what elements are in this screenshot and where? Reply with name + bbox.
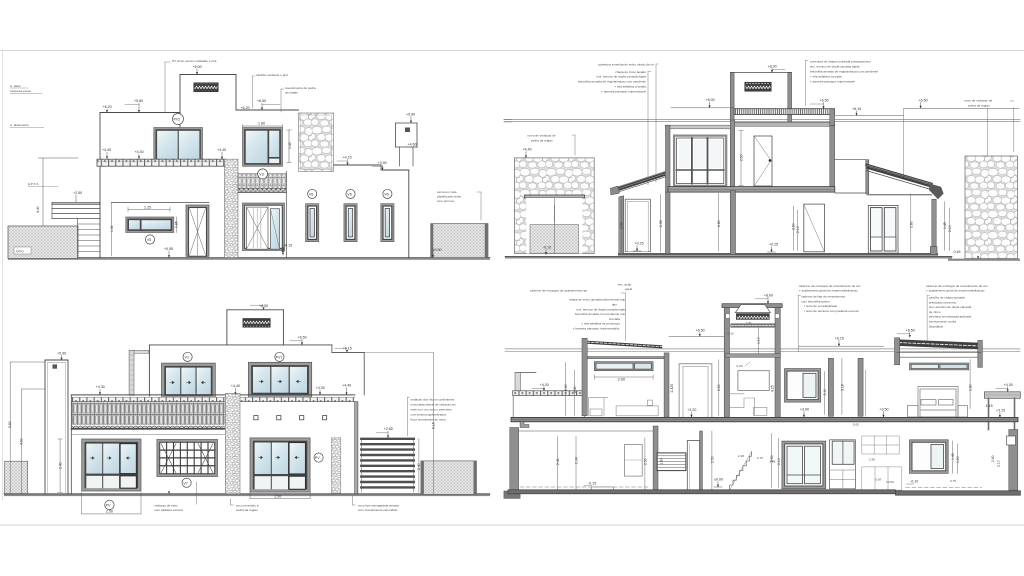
svg-text:2.04: 2.04 <box>574 457 578 464</box>
svg-text:0.20: 0.20 <box>737 364 743 368</box>
svg-text:2.50: 2.50 <box>710 456 714 463</box>
svg-text:0.45: 0.45 <box>954 250 961 254</box>
svg-text:interiormente oculta: interiormente oculta <box>929 320 956 324</box>
svg-text:2.50: 2.50 <box>869 458 875 462</box>
svg-text:+0.15: +0.15 <box>283 244 292 248</box>
svg-text:0.10: 0.10 <box>728 332 734 336</box>
svg-text:+4.30: +4.30 <box>540 383 549 387</box>
svg-text:+6.15: +6.15 <box>852 107 861 111</box>
svg-text:2.50: 2.50 <box>643 458 647 465</box>
svg-text:caderno de encargos de acabame: caderno de encargos de acabamentos ge <box>530 289 587 293</box>
svg-text:cobertura de chapa ondulada pr: cobertura de chapa ondulada prelacada ti… <box>810 60 871 64</box>
svg-text:betonilha armada de regulariza: betonilha armada de regularizacao com pe… <box>810 70 878 74</box>
svg-text:betonilha armada de regulariza: betonilha armada de regularizacao com pe… <box>578 80 646 84</box>
svg-text:muro de vedacao de: muro de vedacao de <box>528 134 556 138</box>
svg-text:2.80: 2.80 <box>991 455 995 462</box>
svg-text:rede met. em todo o perimetro: rede met. em todo o perimetro <box>411 408 453 412</box>
svg-text:caixilho oscilante e pint.: caixilho oscilante e pint. <box>256 73 289 77</box>
svg-text:enc. acab.: enc. acab. <box>618 283 632 287</box>
svg-text:vedacao de vidro: vedacao de vidro <box>154 503 178 507</box>
svg-text:±0.00: ±0.00 <box>433 248 442 252</box>
svg-text:cruzada: cruzada <box>609 317 620 321</box>
svg-text:2.425: 2.425 <box>670 384 674 393</box>
svg-text:-0.10: -0.10 <box>543 246 551 250</box>
svg-text:com revestimento escondido: com revestimento escondido <box>358 508 398 512</box>
svg-text:da regiao: da regiao <box>285 91 298 95</box>
svg-text:±0.00: ±0.00 <box>714 478 723 482</box>
svg-text:soco revestido a: soco revestido a <box>236 503 259 507</box>
svg-text:de zinco: de zinco <box>929 310 941 314</box>
svg-text:2.80: 2.80 <box>717 220 721 227</box>
svg-text:+4.30: +4.30 <box>1004 383 1013 387</box>
svg-text:4.25: 4.25 <box>771 385 775 392</box>
svg-text:2.40: 2.40 <box>556 458 560 465</box>
svg-text:+ tela asfaltica de proteccao: + tela asfaltica de proteccao <box>581 322 620 326</box>
svg-text:+8.00: +8.00 <box>768 64 777 68</box>
svg-text:2.40: 2.40 <box>58 462 62 469</box>
svg-text:PV2: PV2 <box>174 118 181 122</box>
svg-text:(standard): (standard) <box>929 324 943 328</box>
svg-text:2.48: 2.48 <box>738 454 744 458</box>
svg-text:caderno de laje de revestiment: caderno de laje de revestimento <box>801 295 845 299</box>
svg-text:6.15: 6.15 <box>432 422 436 429</box>
svg-text:A. dado: A. dado <box>10 84 21 88</box>
svg-text:1.60: 1.60 <box>660 458 664 465</box>
svg-text:2.56: 2.56 <box>659 220 663 227</box>
svg-text:cobertura invertida de seixo r: cobertura invertida de seixo rolado de r… <box>598 63 654 67</box>
svg-text:+6.15: +6.15 <box>835 337 844 341</box>
svg-text:+6.50: +6.50 <box>298 335 307 339</box>
svg-text:1.45: 1.45 <box>288 142 292 149</box>
svg-text:V6: V6 <box>309 193 313 197</box>
svg-text:cerca em rede: cerca em rede <box>437 190 457 194</box>
svg-text:4.50: 4.50 <box>19 438 23 445</box>
svg-text:com padieira escond.: com padieira escond. <box>154 508 184 512</box>
svg-text:+ barreira parvapor impermeave: + barreira parvapor impermeavel <box>810 80 855 84</box>
svg-text:+ tela asfaltica cruzada: + tela asfaltica cruzada <box>810 75 842 79</box>
svg-text:+4.30: +4.30 <box>96 385 105 389</box>
svg-text:² tecto de contraplacado: ² tecto de contraplacado <box>804 304 837 308</box>
svg-text:+2.50: +2.50 <box>73 191 82 195</box>
svg-text:2.80: 2.80 <box>909 221 913 228</box>
svg-text:+4.10: +4.10 <box>343 156 352 160</box>
svg-text:+3.15: +3.15 <box>996 408 1005 412</box>
svg-text:+5.90: +5.90 <box>57 352 66 356</box>
svg-text:V1: V1 <box>185 356 189 360</box>
svg-text:2.80: 2.80 <box>969 384 973 391</box>
svg-text:+6.50: +6.50 <box>257 99 266 103</box>
svg-text:+6.00: +6.00 <box>706 98 715 102</box>
svg-text:turquesa escec.: turquesa escec. <box>10 89 32 93</box>
svg-text:betonilha armada com pendente: betonilha armada com pendente min. <box>575 312 626 316</box>
svg-text:com prumos galvanizados: com prumos galvanizados <box>411 413 447 417</box>
svg-text:+6.00: +6.00 <box>193 65 202 69</box>
svg-text:+0.25: +0.25 <box>769 243 778 247</box>
svg-text:+3.90: +3.90 <box>378 161 387 165</box>
svg-text:isol. acustico de dupla camada: isol. acustico de dupla camada <box>929 305 972 309</box>
svg-text:² tecto de terracos com padiei: ² tecto de terracos com padieira escond. <box>804 309 859 313</box>
svg-text:pedra da regiao: pedra da regiao <box>968 104 990 108</box>
svg-text:caixilho de chapa quinada: caixilho de chapa quinada <box>929 296 965 300</box>
svg-text:isol. termico de dupla camada: isol. termico de dupla camada rigida <box>596 75 646 79</box>
svg-text:revestimento de pedra: revestimento de pedra <box>285 86 316 90</box>
svg-text:2.10: 2.10 <box>796 226 800 233</box>
svg-text:+8.50: +8.50 <box>259 304 268 308</box>
svg-text:1.40: 1.40 <box>110 225 114 232</box>
svg-text:1.15: 1.15 <box>986 404 993 408</box>
svg-text:5.05: 5.05 <box>853 422 859 426</box>
svg-text:±0.00: ±0.00 <box>886 480 894 484</box>
svg-text:+0.25: +0.25 <box>635 242 644 246</box>
svg-text:2.60: 2.60 <box>618 378 625 382</box>
svg-text:2.10: 2.10 <box>823 389 827 396</box>
svg-text:PV: PV <box>106 504 111 508</box>
svg-text:2.30: 2.30 <box>620 222 624 229</box>
svg-text:2.60: 2.60 <box>564 384 568 391</box>
svg-text:2.10: 2.10 <box>948 225 952 232</box>
svg-text:soco tipo esmagadela pintado: soco tipo esmagadela pintado <box>358 503 399 507</box>
svg-text:com betonilha queim.: com betonilha queim. <box>801 299 831 303</box>
svg-text:+6.50: +6.50 <box>820 99 829 103</box>
svg-text:+ tela asfaltica cruzada: + tela asfaltica cruzada <box>614 85 646 89</box>
svg-text:+3.90: +3.90 <box>800 408 809 412</box>
svg-text:-0.15: -0.15 <box>588 482 596 486</box>
svg-text:V3: V3 <box>259 173 263 177</box>
svg-text:-0.10: -0.10 <box>910 480 918 484</box>
svg-text:+ acabamento geral de impermea: + acabamento geral de impermeabilizacao. <box>799 288 858 292</box>
svg-text:+6.50: +6.50 <box>696 329 705 333</box>
svg-text:1.45: 1.45 <box>943 222 947 229</box>
svg-text:0.87: 0.87 <box>876 478 882 482</box>
svg-text:vedacao dos muros confinantes: vedacao dos muros confinantes <box>411 398 455 402</box>
svg-text:+5.90: +5.90 <box>406 113 415 117</box>
svg-text:pedra da regiao: pedra da regiao <box>236 508 258 512</box>
svg-text:2.50: 2.50 <box>717 384 721 391</box>
svg-text:+2.80: +2.80 <box>384 427 393 431</box>
svg-text:2.50: 2.50 <box>106 510 113 514</box>
svg-text:2.40: 2.40 <box>573 386 577 393</box>
svg-text:5.80: 5.80 <box>8 421 12 428</box>
svg-text:plastificada verde: plastificada verde <box>437 195 461 199</box>
svg-text:PV: PV <box>315 456 320 460</box>
svg-text:+4.30: +4.30 <box>135 150 144 154</box>
svg-text:+8.00: +8.00 <box>764 293 773 297</box>
svg-text:A. alisamento: A. alisamento <box>10 123 29 127</box>
svg-text:4.40: 4.40 <box>36 206 40 213</box>
svg-text:+0.55: +0.55 <box>164 247 173 251</box>
svg-text:+4.40: +4.40 <box>102 148 111 152</box>
svg-text:V6: V6 <box>347 193 351 197</box>
svg-text:+ barreira parvapor impermeave: + barreira parvapor impermeavel <box>601 90 646 94</box>
svg-text:+3.50: +3.50 <box>879 408 888 412</box>
svg-text:+4.30: +4.30 <box>316 386 325 390</box>
svg-text:geral: geral <box>625 287 632 291</box>
svg-text:chapa de zinco quinada para re: chapa de zinco quinada para remate sup. <box>569 298 626 302</box>
svg-text:executada lateral de vedacao e: executada lateral de vedacao em <box>411 403 457 407</box>
svg-text:0.75: 0.75 <box>950 479 956 483</box>
svg-text:persiana termolacada aplicada: persiana termolacada aplicada <box>929 315 971 319</box>
svg-text:com prumos: com prumos <box>437 199 454 203</box>
svg-text:prelacado cinza esc.: prelacado cinza esc. <box>929 300 957 304</box>
svg-text:1.80: 1.80 <box>258 122 265 126</box>
svg-text:+ barreira parvapor impermeabi: + barreira parvapor impermeabiliz. <box>573 327 620 331</box>
svg-text:PV zinco escuro ondulado e pin: PV zinco escuro ondulado e pint. <box>172 59 217 63</box>
svg-text:2.10: 2.10 <box>777 458 781 465</box>
svg-text:V5: V5 <box>147 238 151 242</box>
svg-text:+4.40: +4.40 <box>523 148 532 152</box>
svg-text:2.50: 2.50 <box>274 494 281 498</box>
svg-text:pedra da regiao: pedra da regiao <box>531 139 553 143</box>
svg-text:PV1: PV1 <box>276 356 283 360</box>
svg-text:+4.60: +4.60 <box>408 143 417 147</box>
svg-text:V6: V6 <box>384 193 388 197</box>
svg-text:+6.20: +6.20 <box>103 105 112 109</box>
svg-text:+6.50: +6.50 <box>919 98 928 102</box>
svg-text:1.20: 1.20 <box>956 456 960 463</box>
svg-text:isol. termico de dupla camada: isol. termico de dupla camada rigida <box>810 65 860 69</box>
svg-text:chapa de zinco lacado: chapa de zinco lacado <box>615 70 646 74</box>
svg-text:fixos chumbados ao muro: fixos chumbados ao muro <box>411 418 447 422</box>
svg-text:caderno de encargos de revesti: caderno de encargos de revestimento de a… <box>926 284 988 288</box>
svg-text:2.50: 2.50 <box>770 455 774 462</box>
svg-text:1.45: 1.45 <box>951 453 955 460</box>
svg-text:2.70: 2.70 <box>757 456 763 460</box>
svg-text:isol. termico de dupla camada: isol. termico de dupla camada rigida <box>576 307 626 311</box>
svg-text:2.10: 2.10 <box>997 460 1001 467</box>
svg-text:+ acabamento geral de impermea: + acabamento geral de impermeabilizacao. <box>926 288 985 292</box>
svg-text:+4.40: +4.40 <box>231 384 240 388</box>
svg-text:muro de vedacao de: muro de vedacao de <box>964 99 992 103</box>
svg-text:2.50: 2.50 <box>740 154 744 161</box>
svg-text:+6.20: +6.20 <box>241 106 250 110</box>
svg-text:+4.40: +4.40 <box>217 148 226 152</box>
svg-text:+3.20: +3.20 <box>687 408 696 412</box>
svg-text:caderno de encargos de revesti: caderno de encargos de revestimento de a… <box>799 284 861 288</box>
svg-text:1.25: 1.25 <box>144 206 151 210</box>
svg-text:+4.40: +4.40 <box>342 384 351 388</box>
svg-text:+6.50: +6.50 <box>906 328 915 332</box>
svg-text:0.85: 0.85 <box>175 221 179 228</box>
svg-text:3.18: 3.18 <box>840 384 844 391</box>
svg-text:tipo: tipo <box>612 303 617 307</box>
svg-text:AFPO: AFPO <box>16 250 25 254</box>
svg-text:+5.80: +5.80 <box>134 99 143 103</box>
svg-text:∆ P P A: ∆ P P A <box>28 182 39 186</box>
svg-text:V7: V7 <box>183 481 187 485</box>
